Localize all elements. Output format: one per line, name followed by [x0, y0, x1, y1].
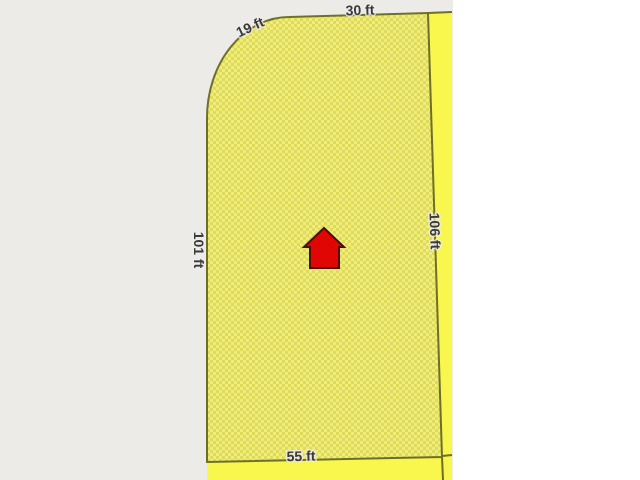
- parcel-map-canvas: 19 ft 30 ft 101 ft 106 ft 55 ft: [0, 0, 640, 480]
- dimension-label-bottom: 55 ft: [286, 448, 316, 465]
- plat-sketch: 19 ft 30 ft 101 ft 106 ft 55 ft: [0, 0, 640, 480]
- dimension-label-left: 101 ft: [191, 232, 207, 269]
- boundary-extension-top: [428, 12, 452, 13]
- boundary-extension-bottom: [442, 455, 452, 456]
- background-right: [453, 0, 640, 480]
- boundary-extension-right: [442, 457, 443, 480]
- dimension-label-top: 30 ft: [345, 1, 375, 18]
- dimension-label-right: 106 ft: [426, 212, 443, 249]
